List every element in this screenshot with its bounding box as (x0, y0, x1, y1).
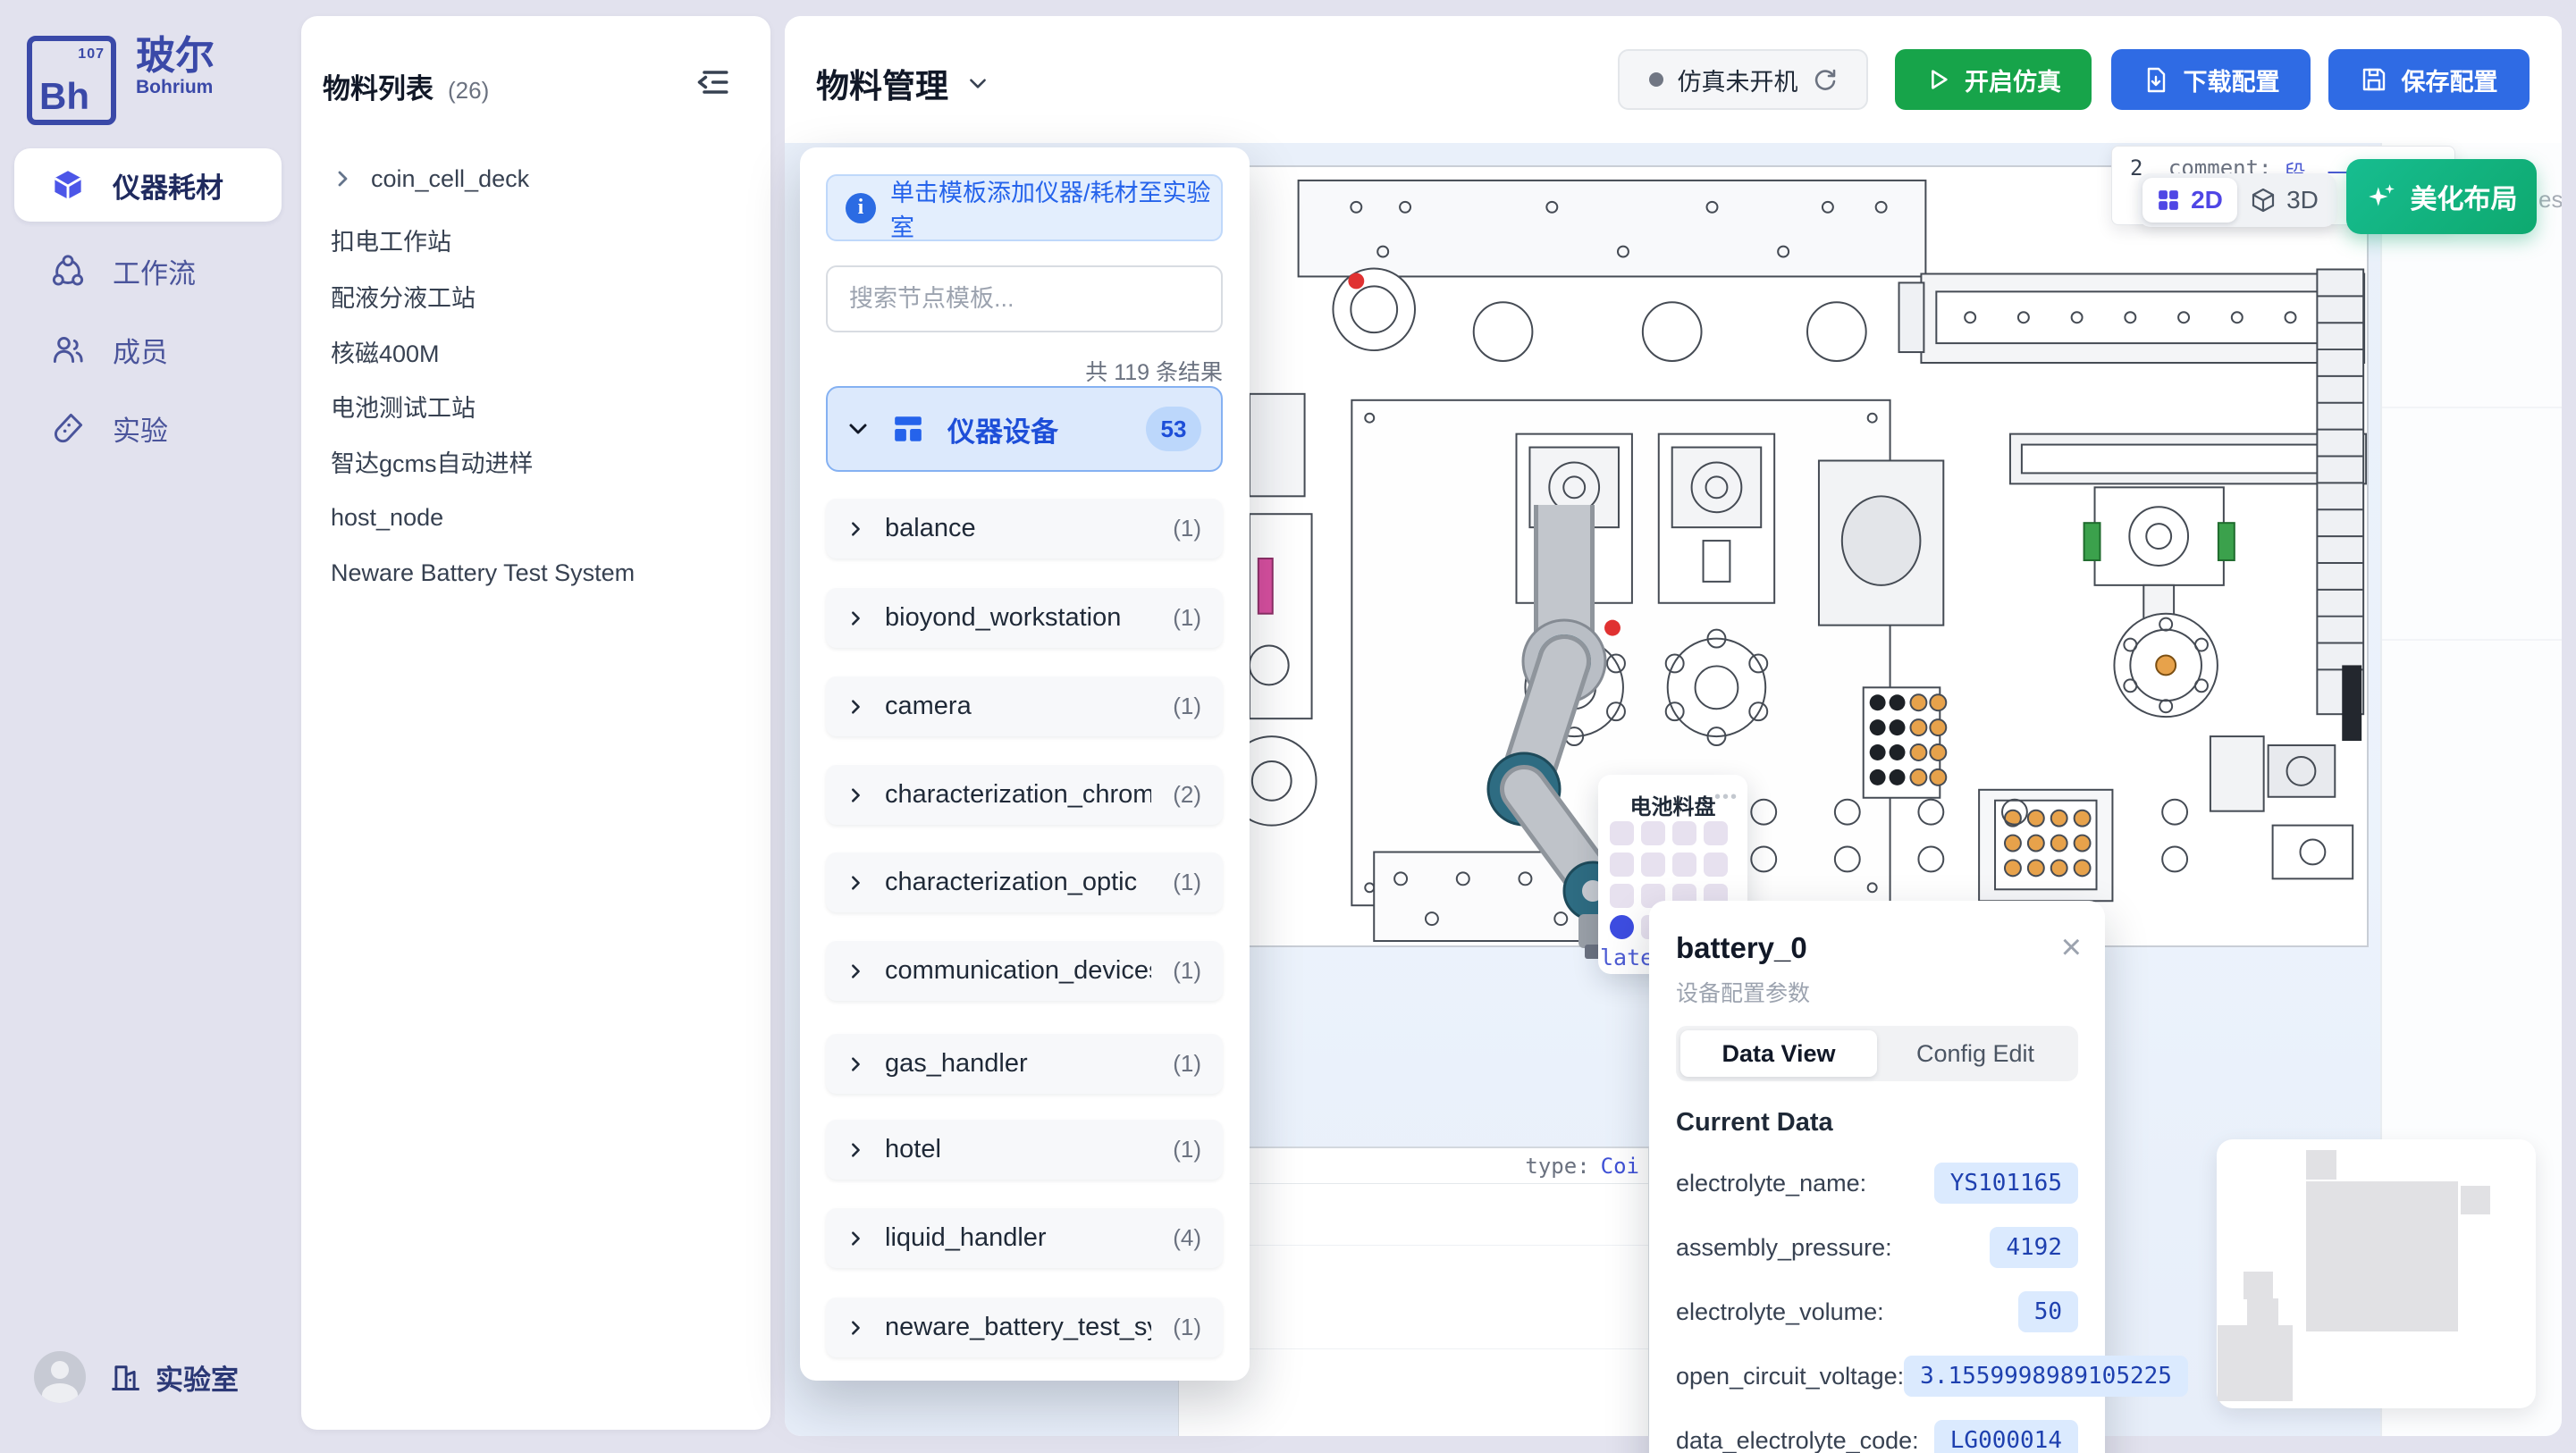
field-row: open_circuit_voltage: 3.1559998989105225 (1676, 1355, 2078, 1398)
devices-grid-icon (892, 413, 924, 445)
bohrium-logo-icon: 107 Bh (27, 36, 116, 125)
sidebar-item-label: 仪器耗材 (113, 165, 223, 206)
save-config-label: 保存配置 (2402, 63, 2498, 97)
template-item-count: (1) (1173, 1136, 1201, 1163)
template-item-camera[interactable]: camera (1) (826, 676, 1223, 736)
tab-data-view[interactable]: Data View (1680, 1030, 1877, 1077)
cube-icon (52, 169, 84, 201)
field-row: electrolyte_name: YS101165 (1676, 1162, 2078, 1205)
toggle-2d-label: 2D (2191, 186, 2223, 214)
template-item-count: (1) (1173, 957, 1201, 985)
workflow-icon (52, 255, 84, 287)
minimap[interactable] (2217, 1139, 2536, 1408)
template-item-hotel[interactable]: hotel (1) (826, 1120, 1223, 1180)
field-value: 3.1559998989105225 (1904, 1356, 2188, 1397)
current-data-heading: Current Data (1676, 1108, 1833, 1138)
category-label: 仪器设备 (947, 409, 1123, 449)
lab-label: 实验室 (156, 1357, 239, 1398)
result-count: 共 119 条结果 (1085, 355, 1223, 387)
status-dot-icon (1649, 72, 1663, 87)
tray-slot[interactable] (1672, 852, 1696, 877)
tray-slot[interactable] (1704, 852, 1728, 877)
template-item-neware-battery-test-system[interactable]: neware_battery_test_system (1) (826, 1298, 1223, 1357)
material-item-label: host_node (301, 504, 443, 532)
field-value: YS101165 (1934, 1163, 2078, 1204)
building-icon (109, 1361, 141, 1393)
template-item-label: balance (885, 514, 1151, 543)
sidebar-item-experiment[interactable]: 实验 (14, 391, 282, 465)
save-config-button[interactable]: 保存配置 (2328, 49, 2530, 110)
template-item-label: liquid_handler (885, 1223, 1151, 1253)
chevron-right-icon (847, 963, 863, 979)
material-item[interactable]: 智达gcms自动进样 (301, 441, 770, 481)
simulation-status-pill[interactable]: 仿真未开机 (1618, 49, 1868, 110)
play-icon (1925, 67, 1950, 92)
field-label: electrolyte_name: (1676, 1170, 1866, 1197)
chevron-down-icon (966, 71, 989, 95)
tray-text-fragment: late (1600, 945, 1654, 970)
field-value: 4192 (1990, 1227, 2078, 1268)
sidebar-item-label: 成员 (113, 330, 168, 370)
tray-slot[interactable] (1610, 821, 1634, 845)
detail-tabs: Data View Config Edit (1676, 1026, 2078, 1081)
device-title: battery_0 (1676, 931, 1807, 965)
toggle-3d-label: 3D (2286, 186, 2319, 214)
field-value: 50 (2018, 1291, 2078, 1332)
sparkles-icon (2366, 181, 2396, 212)
material-list-title: 物料列表 (323, 66, 434, 106)
material-item-label: Neware Battery Test System (301, 559, 635, 587)
template-item-characterization-chromatic[interactable]: characterization_chromatic (2) (826, 765, 1223, 825)
chevron-right-icon (847, 699, 863, 715)
field-label: data_electrolyte_code: (1676, 1427, 1919, 1453)
start-simulation-button[interactable]: 开启仿真 (1895, 49, 2092, 110)
beautify-layout-label: 美化布局 (2411, 177, 2518, 216)
material-list-count: (26) (448, 77, 489, 105)
lab-layout-drawing[interactable] (1247, 165, 2369, 947)
template-panel: i 单击模板添加仪器/耗材至实验室 共 119 条结果 仪器设备 53 bala… (800, 147, 1250, 1381)
template-item-bioyond-workstation[interactable]: bioyond_workstation (1) (826, 588, 1223, 648)
page-title: 物料管理 (816, 59, 948, 107)
close-icon[interactable]: × (2061, 929, 2082, 965)
material-item-label: 核磁400M (301, 334, 440, 369)
template-item-count: (1) (1173, 604, 1201, 632)
info-icon: i (846, 193, 876, 223)
tray-slot[interactable] (1704, 821, 1728, 845)
app: 107 Bh 玻尔 Bohrium 仪器耗材 工作流 (0, 0, 2576, 1453)
tray-slot[interactable] (1641, 821, 1665, 845)
template-hint-banner: i 单击模板添加仪器/耗材至实验室 (826, 174, 1223, 241)
sidebar-item-label: 实验 (113, 408, 168, 449)
brand-logo: 107 Bh 玻尔 Bohrium (27, 36, 215, 125)
template-item-count: (1) (1173, 1314, 1201, 1341)
sidebar-footer: 实验室 (34, 1351, 239, 1403)
sidebar-item-members[interactable]: 成员 (14, 313, 282, 386)
sidebar-item-workflow[interactable]: 工作流 (14, 234, 282, 307)
template-item-count: (1) (1173, 515, 1201, 542)
template-item-label: neware_battery_test_system (885, 1313, 1151, 1342)
template-item-balance[interactable]: balance (1) (826, 499, 1223, 559)
type-value: Coi (1601, 1154, 1639, 1179)
material-list-panel: 物料列表 (26) coin_cell_deck 扣电工作站 配液分液工站 核磁… (301, 16, 770, 1430)
template-item-label: characterization_optic (885, 868, 1151, 897)
start-simulation-label: 开启仿真 (1965, 63, 2061, 97)
download-file-icon (2142, 66, 2169, 93)
search-input[interactable] (826, 265, 1223, 332)
experiment-icon (52, 412, 84, 444)
canvas-header: 物料管理 仿真未开机 开启仿真 (785, 16, 2562, 143)
tray-slot[interactable] (1641, 852, 1665, 877)
download-config-button[interactable]: 下载配置 (2111, 49, 2311, 110)
toggle-3d[interactable]: 3D (2237, 178, 2332, 223)
view-mode-toggle: 2D 3D (2138, 173, 2336, 227)
page-title-dropdown[interactable]: 物料管理 (816, 59, 989, 107)
members-icon (52, 333, 84, 365)
beautify-layout-button[interactable]: 美化布局 (2346, 159, 2537, 234)
material-item[interactable]: 配液分液工站 (301, 276, 770, 315)
more-options-icon[interactable]: ••• (1714, 787, 1738, 808)
brand-name-en: Bohrium (136, 77, 215, 98)
chevron-down-icon (847, 418, 869, 440)
field-label: assembly_pressure: (1676, 1234, 1892, 1262)
device-detail-panel: battery_0 设备配置参数 × Data View Config Edit… (1649, 901, 2105, 1453)
template-item-label: bioyond_workstation (885, 603, 1151, 633)
template-item-count: (1) (1173, 1050, 1201, 1078)
tray-slot[interactable] (1610, 852, 1634, 877)
resource-text-fragment: esou (2538, 186, 2562, 214)
material-item-label: 智达gcms自动进样 (301, 444, 534, 479)
download-config-label: 下载配置 (2184, 63, 2280, 97)
template-item-count: (2) (1173, 781, 1201, 809)
grid-2d-icon (2157, 189, 2180, 212)
material-item[interactable]: 电池测试工站 (301, 386, 770, 425)
chevron-right-icon (847, 1230, 863, 1247)
logo-number: 107 (78, 46, 105, 63)
template-item-gas-handler[interactable]: gas_handler (1) (826, 1034, 1223, 1094)
material-item-label: 电池测试工站 (301, 389, 476, 424)
field-value: LG000014 (1934, 1420, 2078, 1453)
brand-name-cn: 玻尔 (136, 36, 215, 77)
template-item-communication-devices[interactable]: communication_devices (1) (826, 941, 1223, 1001)
sidebar: 107 Bh 玻尔 Bohrium 仪器耗材 工作流 (0, 0, 296, 1453)
sidebar-item-label: 工作流 (113, 251, 196, 291)
template-item-count: (1) (1173, 869, 1201, 896)
material-item[interactable]: 核磁400M (301, 332, 770, 371)
material-item[interactable]: host_node (301, 498, 770, 537)
chevron-right-icon (847, 1142, 863, 1158)
tray-slot[interactable] (1672, 821, 1696, 845)
material-item[interactable]: Neware Battery Test System (301, 553, 770, 592)
type-key: type: (1525, 1154, 1589, 1179)
material-item-label: coin_cell_deck (371, 165, 529, 193)
template-item-count: (4) (1173, 1224, 1201, 1252)
template-item-count: (1) (1173, 693, 1201, 720)
template-item-label: camera (885, 692, 1151, 721)
material-item-label: 配液分液工站 (301, 279, 476, 314)
chevron-right-icon (847, 1320, 863, 1336)
chevron-right-icon (333, 170, 351, 188)
material-item[interactable]: 扣电工作站 (301, 220, 770, 259)
template-hint-text: 单击模板添加仪器/耗材至实验室 (890, 173, 1221, 243)
field-row: data_electrolyte_code: LG000014 (1676, 1419, 2078, 1453)
logo-symbol: Bh (39, 75, 89, 118)
collapse-panel-icon[interactable] (695, 63, 734, 102)
field-row: assembly_pressure: 4192 (1676, 1226, 2078, 1269)
template-item-label: characterization_chromatic (885, 780, 1151, 810)
chevron-right-icon (847, 787, 863, 803)
template-item-liquid-handler[interactable]: liquid_handler (4) (826, 1208, 1223, 1268)
tab-label: Data View (1722, 1040, 1835, 1068)
tab-label: Config Edit (1916, 1040, 2034, 1068)
toggle-2d[interactable]: 2D (2142, 178, 2237, 223)
chevron-right-icon (847, 521, 863, 537)
tab-config-edit[interactable]: Config Edit (1877, 1030, 2074, 1077)
template-item-characterization-optic[interactable]: characterization_optic (1) (826, 852, 1223, 912)
field-row: electrolyte_volume: 50 (1676, 1290, 2078, 1333)
save-icon (2361, 66, 2387, 93)
status-label: 仿真未开机 (1678, 63, 1798, 97)
material-item-coin-cell-deck[interactable]: coin_cell_deck (301, 159, 770, 198)
category-count-badge: 53 (1146, 407, 1201, 451)
chevron-right-icon (847, 875, 863, 891)
template-item-label: gas_handler (885, 1049, 1151, 1079)
sidebar-item-instruments[interactable]: 仪器耗材 (14, 148, 282, 222)
tray-slot[interactable] (1610, 884, 1634, 908)
field-label: open_circuit_voltage: (1676, 1363, 1904, 1390)
template-item-label: communication_devices (885, 956, 1151, 986)
avatar[interactable] (34, 1351, 86, 1403)
lab-switcher[interactable]: 实验室 (109, 1357, 239, 1398)
material-item-label: 扣电工作站 (301, 223, 451, 257)
field-label: electrolyte_volume: (1676, 1298, 1884, 1326)
category-instruments[interactable]: 仪器设备 53 (826, 386, 1223, 472)
template-item-label: hotel (885, 1135, 1151, 1164)
chevron-right-icon (847, 610, 863, 626)
refresh-icon[interactable] (1813, 67, 1838, 92)
tray-slot-selected-battery-0[interactable] (1610, 915, 1634, 939)
device-subtitle: 设备配置参数 (1676, 976, 1810, 1008)
chevron-right-icon (847, 1056, 863, 1072)
cube-3d-icon (2251, 188, 2276, 213)
